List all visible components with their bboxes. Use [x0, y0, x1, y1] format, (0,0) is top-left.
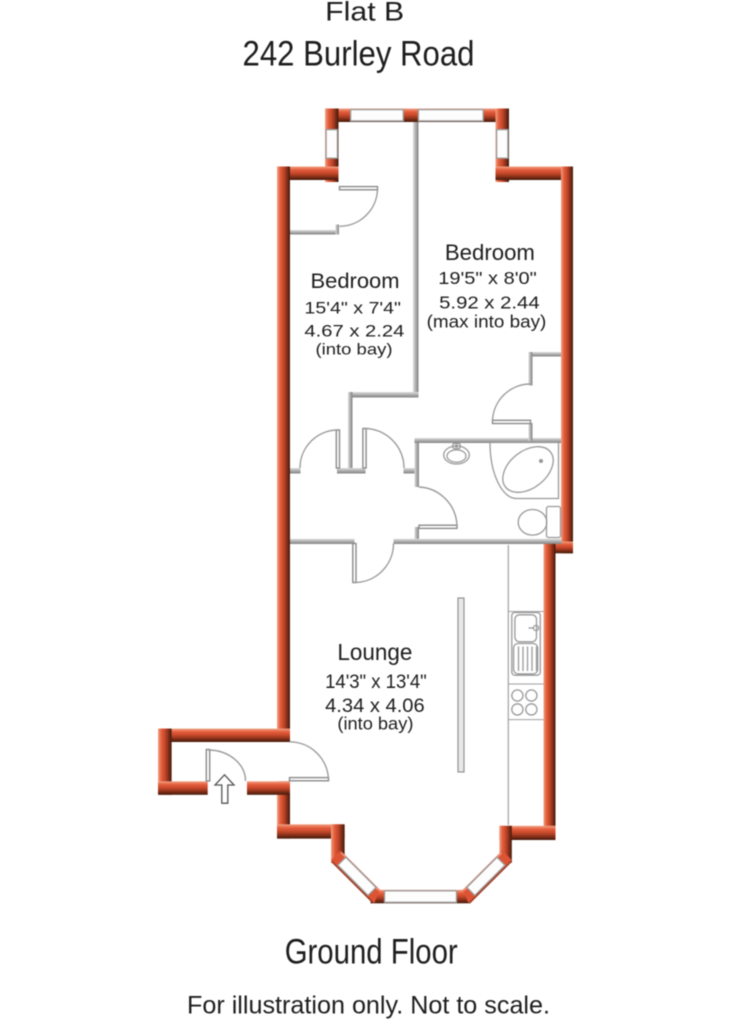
svg-text:15'4" x 7'4": 15'4" x 7'4": [304, 299, 401, 317]
svg-text:Bedroom: Bedroom: [311, 270, 400, 293]
svg-text:Ground Floor: Ground Floor: [285, 933, 458, 972]
svg-text:242 Burley Road: 242 Burley Road: [243, 35, 475, 74]
svg-text:Bedroom: Bedroom: [445, 240, 535, 265]
svg-text:Flat B: Flat B: [325, 0, 404, 27]
svg-text:(into bay): (into bay): [316, 342, 393, 359]
svg-text:(into bay): (into bay): [337, 714, 413, 734]
svg-text:19'5" x 8'0": 19'5" x 8'0": [438, 268, 537, 288]
svg-text:5.92 x 2.44: 5.92 x 2.44: [439, 293, 540, 313]
svg-text:For illustration only. Not to: For illustration only. Not to scale.: [187, 992, 550, 1020]
svg-text:(max into bay): (max into bay): [427, 312, 547, 332]
svg-text:Lounge: Lounge: [337, 639, 412, 665]
svg-text:4.67 x 2.24: 4.67 x 2.24: [304, 323, 404, 341]
svg-text:14'3" x 13'4": 14'3" x 13'4": [325, 672, 427, 693]
